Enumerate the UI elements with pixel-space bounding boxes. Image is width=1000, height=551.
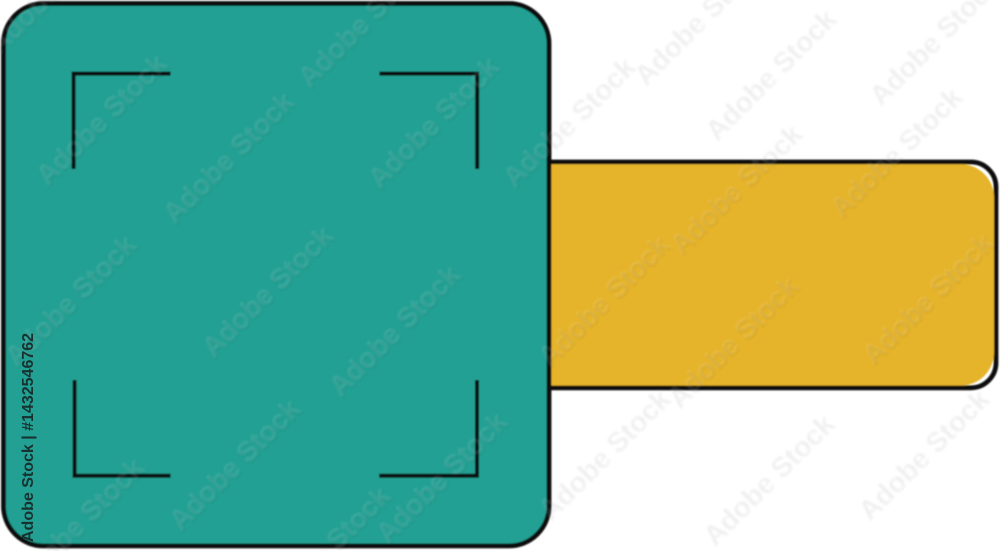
svg-text:Adobe Stock | #1432546762: Adobe Stock | #1432546762 — [20, 333, 37, 542]
svg-text:Adobe Stock: Adobe Stock — [532, 382, 675, 525]
svg-text:Adobe Stock: Adobe Stock — [696, 407, 839, 550]
svg-text:Adobe Stock: Adobe Stock — [698, 2, 841, 145]
svg-text:Adobe Stock: Adobe Stock — [851, 382, 994, 525]
